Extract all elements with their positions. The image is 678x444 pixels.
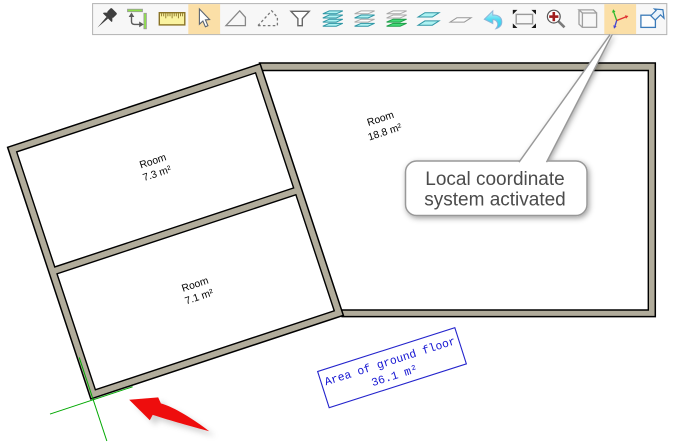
svg-text:system activated: system activated bbox=[424, 189, 566, 210]
svg-text:Local coordinate: Local coordinate bbox=[425, 169, 564, 190]
